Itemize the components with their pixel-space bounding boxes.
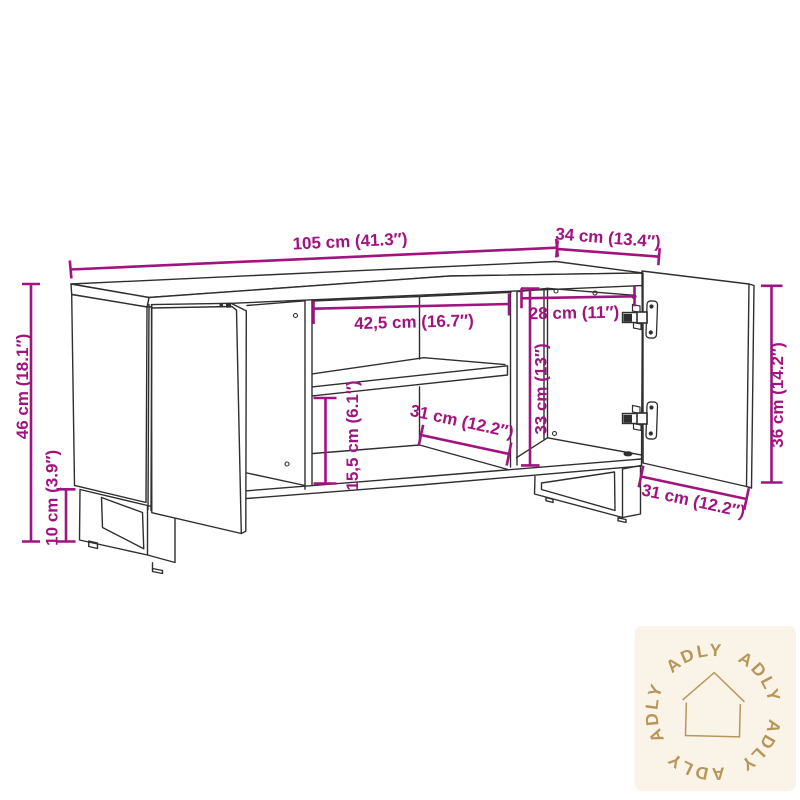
svg-text:28 cm (11″): 28 cm (11″) bbox=[529, 303, 620, 324]
svg-text:15,5 cm (6.1″): 15,5 cm (6.1″) bbox=[343, 380, 362, 490]
svg-text:42,5 cm (16.7″): 42,5 cm (16.7″) bbox=[354, 311, 474, 333]
svg-text:10 cm (3.9″): 10 cm (3.9″) bbox=[42, 450, 61, 546]
svg-text:33 cm (13″): 33 cm (13″) bbox=[531, 343, 550, 434]
svg-text:36 cm (14.2″): 36 cm (14.2″) bbox=[768, 342, 787, 447]
svg-text:46 cm (18.1″): 46 cm (18.1″) bbox=[13, 334, 32, 439]
